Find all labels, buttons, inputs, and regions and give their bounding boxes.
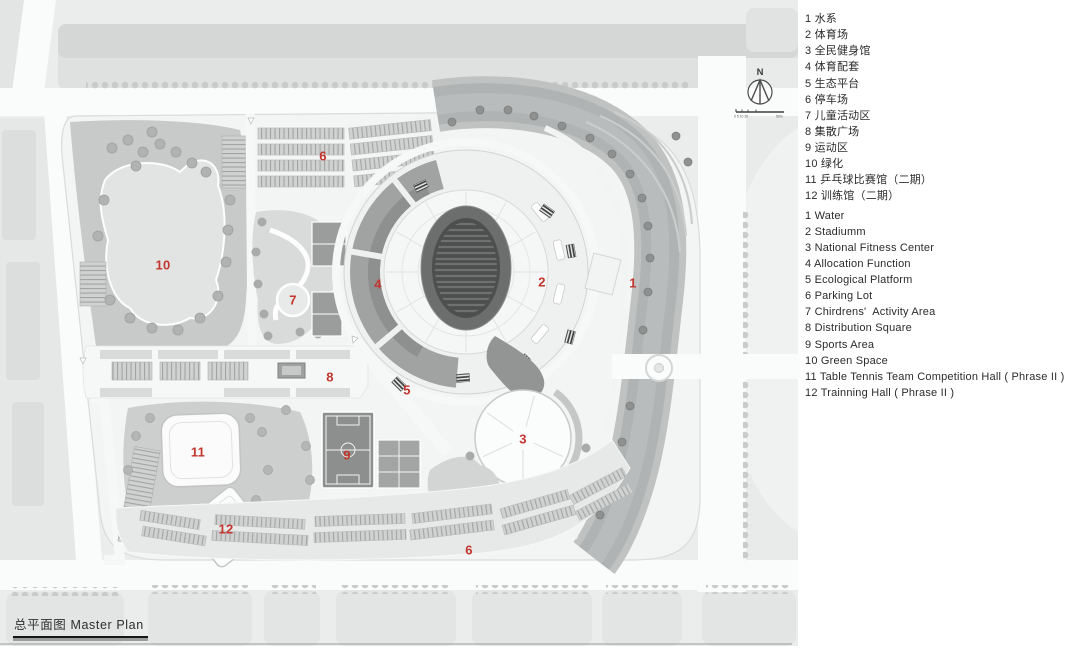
legend-en-item-11: 11 Table Tennis Team Competition Hall ( … bbox=[805, 369, 1064, 385]
green-space-park bbox=[70, 120, 249, 354]
legend-en-item-5: 5 Ecological Platform bbox=[805, 272, 1064, 288]
legend-zh-item-5: 5 生态平台 bbox=[805, 76, 1064, 92]
plan-label-10: 10 bbox=[155, 258, 170, 273]
legend-en-item-6: 6 Parking Lot bbox=[805, 288, 1064, 304]
plan-label-3: 3 bbox=[519, 432, 527, 447]
plan-title: 总平面图 Master Plan bbox=[13, 614, 148, 638]
legend-zh-item-9: 9 运动区 bbox=[805, 140, 1064, 156]
plan-label-6: 6 bbox=[319, 149, 327, 164]
legend-zh-item-2: 2 体育场 bbox=[805, 27, 1064, 43]
legend-en-item-4: 4 Allocation Function bbox=[805, 256, 1064, 272]
legend-zh-item-12: 12 训练馆（二期） bbox=[805, 188, 1064, 204]
legend-zh-item-10: 10 绿化 bbox=[805, 156, 1064, 172]
legend: 1 水系2 体育场3 全民健身馆4 体育配套5 生态平台6 停车场7 儿童活动区… bbox=[805, 11, 1064, 401]
plan-label-2: 2 bbox=[538, 275, 546, 290]
stadium bbox=[336, 142, 596, 402]
legend-zh-item-6: 6 停车场 bbox=[805, 92, 1064, 108]
plan-label-6: 6 bbox=[465, 543, 473, 558]
plan-label-11: 11 bbox=[191, 445, 205, 460]
plan-label-12: 12 bbox=[218, 522, 233, 537]
scale-right-text: 50m bbox=[776, 115, 783, 119]
plan-label-7: 7 bbox=[289, 293, 297, 308]
north-label: N bbox=[757, 67, 764, 78]
legend-en-item-2: 2 Stadiumm bbox=[805, 224, 1064, 240]
legend-zh-item-11: 11 乒乓球比赛馆（二期） bbox=[805, 172, 1064, 188]
legend-zh-item-4: 4 体育配套 bbox=[805, 59, 1064, 75]
scale-left-text: 0 5 10 20 bbox=[734, 115, 748, 119]
plan-label-9: 9 bbox=[343, 448, 351, 463]
childrens-activity-area bbox=[252, 210, 347, 344]
legend-en-item-9: 9 Sports Area bbox=[805, 337, 1064, 353]
legend-english: 1 Water2 Stadiumm3 National Fitness Cent… bbox=[805, 208, 1064, 402]
legend-zh-item-1: 1 水系 bbox=[805, 11, 1064, 27]
legend-chinese: 1 水系2 体育场3 全民健身馆4 体育配套5 生态平台6 停车场7 儿童活动区… bbox=[805, 11, 1064, 205]
legend-zh-item-7: 7 儿童活动区 bbox=[805, 108, 1064, 124]
legend-en-item-3: 3 National Fitness Center bbox=[805, 240, 1064, 256]
page-root: N 0 5 10 20 50m 1234566789101112 1 水系2 体… bbox=[0, 0, 1080, 651]
legend-en-item-12: 12 Trainning Hall ( Phrase II ) bbox=[805, 385, 1064, 401]
plan-label-8: 8 bbox=[326, 370, 334, 385]
legend-zh-item-3: 3 全民健身馆 bbox=[805, 43, 1064, 59]
legend-en-item-8: 8 Distribution Square bbox=[805, 320, 1064, 336]
legend-en-item-1: 1 Water bbox=[805, 208, 1064, 224]
legend-en-item-7: 7 Chirdrens' Activity Area bbox=[805, 304, 1064, 320]
legend-zh-item-8: 8 集散广场 bbox=[805, 124, 1064, 140]
legend-en-item-10: 10 Green Space bbox=[805, 353, 1064, 369]
plan-label-5: 5 bbox=[403, 383, 411, 398]
plan-label-1: 1 bbox=[629, 276, 637, 291]
plan-label-4: 4 bbox=[374, 277, 382, 292]
